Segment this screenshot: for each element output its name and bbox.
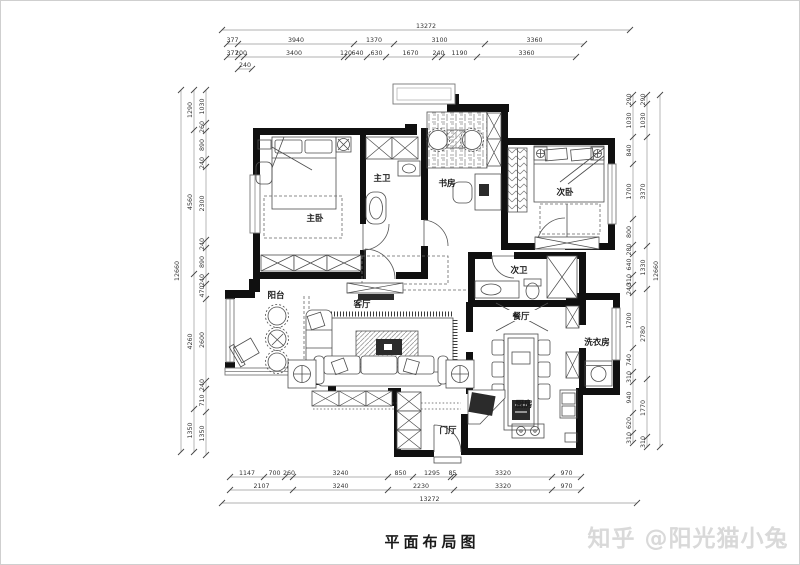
dim-label: 1295 bbox=[424, 470, 440, 477]
dim-chain-top_row3: 240 bbox=[235, 62, 255, 72]
dim-label: 1147 bbox=[239, 470, 255, 477]
dim-label: 85 bbox=[448, 470, 456, 477]
dim-label: 970 bbox=[560, 470, 572, 477]
room-label-study: 书房 bbox=[438, 178, 455, 189]
second-bath-furniture bbox=[475, 279, 541, 299]
x-box bbox=[535, 237, 599, 249]
dim-chain-right_total: 12660 bbox=[653, 92, 663, 450]
dim-label: 240 bbox=[199, 274, 206, 286]
dim-label: 1330 bbox=[640, 259, 647, 275]
dim-label: 4260 bbox=[187, 333, 194, 349]
entry-step bbox=[434, 457, 461, 463]
dim-label: 1350 bbox=[187, 422, 194, 438]
monitor-icon bbox=[479, 184, 489, 196]
x-box bbox=[397, 411, 421, 430]
dim-label: 890 bbox=[199, 256, 206, 268]
dim-label: 280 bbox=[626, 243, 633, 255]
fridge-icon bbox=[468, 392, 495, 416]
dim-label: 120 bbox=[340, 50, 352, 57]
dim-chain-top_row1: 3773940137031003360 bbox=[224, 37, 587, 47]
room-label-second-bath: 次卫 bbox=[510, 265, 528, 276]
desk-chair-icon bbox=[453, 182, 472, 203]
laundry-furniture bbox=[585, 361, 612, 386]
dim-label: 2107 bbox=[253, 483, 269, 490]
dim-label: 940 bbox=[626, 391, 633, 403]
dim-label: 1030 bbox=[199, 98, 206, 114]
dim-label: 740 bbox=[626, 354, 633, 366]
dim-chain-right_inner: 2901030840170080028064031024017007403109… bbox=[626, 92, 636, 446]
x-box bbox=[487, 139, 501, 166]
dim-label: 2230 bbox=[413, 483, 429, 490]
dim-label: 240 bbox=[626, 283, 633, 295]
x-box bbox=[347, 283, 403, 293]
dim-label: 310 bbox=[626, 371, 633, 383]
round-table-icon bbox=[429, 131, 448, 150]
dim-label: 200 bbox=[235, 50, 247, 57]
x-box bbox=[397, 430, 421, 449]
dim-label: 3320 bbox=[495, 483, 511, 490]
x-box bbox=[294, 255, 327, 271]
dim-label: 710 bbox=[199, 394, 206, 406]
dim-chain-bottom_row1: 114770026032408501295853320970 bbox=[227, 470, 584, 480]
dim-label: 240 bbox=[199, 238, 206, 250]
dim-label: 1290 bbox=[187, 102, 194, 118]
dim-label: 310 bbox=[626, 432, 633, 444]
toilet-icon bbox=[524, 279, 541, 286]
dim-label: 800 bbox=[626, 226, 633, 238]
dim-label: 3360 bbox=[518, 50, 534, 57]
floor-plan-page: 主卧 主卫 书房 次卧 次卫 客厅 阳台 餐厅 洗衣房 厨房 门厅 132723… bbox=[0, 0, 800, 565]
dim-label: 290 bbox=[640, 93, 647, 105]
dim-chain-bottom_row2: 2107324022303320970 bbox=[227, 483, 584, 493]
dim-label: 3400 bbox=[286, 50, 302, 57]
x-box bbox=[566, 352, 579, 378]
dim-label: 3320 bbox=[495, 470, 511, 477]
dim-label: 240 bbox=[432, 50, 444, 57]
dim-label: 240 bbox=[239, 62, 251, 69]
dim-label: 310 bbox=[640, 436, 647, 448]
dim-label: 3940 bbox=[288, 37, 304, 44]
x-box bbox=[261, 255, 294, 271]
master-bedroom-door bbox=[365, 249, 395, 279]
dim-label: 13272 bbox=[416, 23, 436, 30]
dim-label: 700 bbox=[268, 470, 280, 477]
dim-label: 3240 bbox=[332, 483, 348, 490]
balcony-furniture bbox=[229, 305, 288, 374]
dim-label: 1190 bbox=[451, 50, 467, 57]
dim-label: 630 bbox=[370, 50, 382, 57]
dim-label: 3240 bbox=[332, 470, 348, 477]
dim-label: 2780 bbox=[640, 326, 647, 342]
room-label-master-bedroom: 主卧 bbox=[306, 213, 324, 224]
dim-chain-top_row2: 3772003400120640630167024011903360 bbox=[224, 50, 579, 60]
dim-label: 240 bbox=[199, 379, 206, 391]
dim-label: 1030 bbox=[626, 112, 633, 128]
dim-chain-left_total: 12660 bbox=[174, 87, 184, 455]
x-box bbox=[339, 391, 366, 406]
plant-pot-icon bbox=[268, 353, 286, 371]
dim-label: 2600 bbox=[199, 332, 206, 348]
dim-label: 840 bbox=[626, 144, 633, 156]
room-label-living-room: 客厅 bbox=[352, 299, 371, 310]
room-label-kitchen: 厨房 bbox=[515, 399, 532, 410]
x-box bbox=[312, 391, 339, 406]
dim-label: 620 bbox=[626, 417, 633, 429]
x-box bbox=[327, 255, 361, 271]
sink-icon bbox=[398, 161, 420, 176]
room-label-master-bath: 主卫 bbox=[373, 173, 391, 184]
balcony-railing bbox=[393, 84, 455, 104]
room-label-dining-room: 餐厅 bbox=[511, 311, 530, 322]
dim-label: 260 bbox=[199, 121, 206, 133]
room-label-laundry-room: 洗衣房 bbox=[584, 337, 610, 348]
dim-label: 640 bbox=[351, 50, 363, 57]
dim-label: 470 bbox=[199, 285, 206, 297]
dim-label: 1350 bbox=[199, 425, 206, 441]
dining-room-furniture bbox=[492, 303, 550, 430]
dim-label: 3100 bbox=[431, 37, 447, 44]
floor-plan-drawing: 主卧 主卫 书房 次卧 次卫 客厅 阳台 餐厅 洗衣房 厨房 门厅 132723… bbox=[0, 0, 800, 565]
dim-chain-left_inner: 1030260890240230024089024047026002407101… bbox=[199, 87, 209, 458]
dim-label: 1370 bbox=[366, 37, 382, 44]
dim-label: 4560 bbox=[187, 194, 194, 210]
dim-label: 1700 bbox=[626, 183, 633, 199]
dim-label: 377 bbox=[226, 37, 238, 44]
living-room-furniture bbox=[288, 294, 474, 388]
dim-label: 2300 bbox=[199, 195, 206, 211]
dim-label: 3360 bbox=[526, 37, 542, 44]
dim-label: 260 bbox=[283, 470, 295, 477]
dim-label: 1030 bbox=[640, 112, 647, 128]
dim-label: 850 bbox=[394, 470, 406, 477]
master-bath-furniture bbox=[366, 161, 420, 224]
x-box bbox=[397, 392, 421, 411]
dim-label: 290 bbox=[626, 93, 633, 105]
x-box bbox=[487, 113, 501, 139]
room-label-balcony: 阳台 bbox=[267, 290, 285, 301]
master-bath-door bbox=[363, 224, 389, 250]
dim-label: 1700 bbox=[626, 312, 633, 328]
zhihu-watermark: 知乎 @阳光猫小兔 bbox=[587, 525, 788, 552]
dim-label: 890 bbox=[199, 139, 206, 151]
dim-chain-left_outer: 1290456042601350 bbox=[187, 87, 197, 455]
x-box bbox=[547, 256, 577, 298]
drawing-title: 平面布局图 bbox=[384, 533, 479, 551]
dim-chain-bottom_total: 13272 bbox=[219, 496, 640, 506]
dim-label: 240 bbox=[199, 157, 206, 169]
master-bedroom-furniture bbox=[256, 137, 351, 238]
plant-pot-icon bbox=[268, 307, 286, 325]
room-label-second-bedroom: 次卧 bbox=[556, 187, 574, 198]
room-label-foyer: 门厅 bbox=[439, 425, 457, 436]
dim-label: 640 bbox=[626, 258, 633, 270]
dim-label: 3370 bbox=[640, 183, 647, 199]
sink-counter-icon bbox=[475, 281, 519, 298]
x-box bbox=[366, 391, 392, 406]
dim-chain-top_total: 13272 bbox=[219, 23, 633, 33]
dim-label: 1770 bbox=[640, 400, 647, 416]
dim-label: 1670 bbox=[402, 50, 418, 57]
x-box bbox=[566, 306, 579, 328]
washing-machine-icon bbox=[585, 361, 612, 386]
x-box bbox=[392, 137, 418, 159]
dim-label: 13272 bbox=[419, 496, 439, 503]
dim-label: 12660 bbox=[653, 261, 660, 281]
dim-label: 12660 bbox=[174, 261, 181, 281]
study-door bbox=[424, 220, 448, 246]
dim-chain-right_outer: 29010303370133027801770310 bbox=[640, 92, 650, 450]
x-box bbox=[366, 137, 392, 159]
dim-label: 970 bbox=[560, 483, 572, 490]
